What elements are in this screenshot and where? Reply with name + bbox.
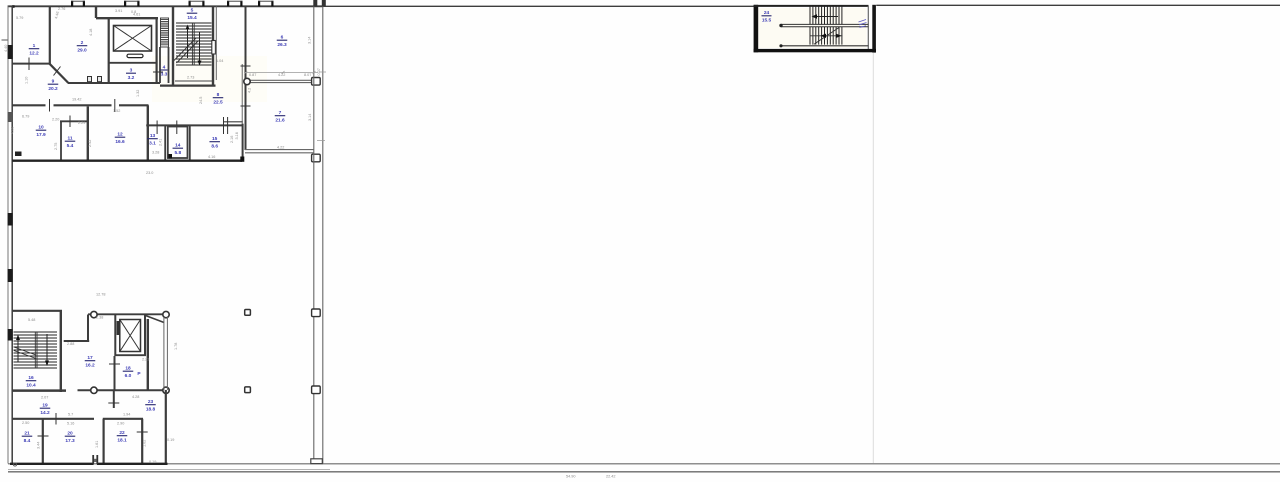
svg-text:1.94: 1.94 <box>123 413 130 417</box>
svg-text:2: 2 <box>81 40 84 46</box>
svg-text:2.42: 2.42 <box>88 140 92 147</box>
svg-text:1.04: 1.04 <box>216 59 223 63</box>
svg-text:2.38: 2.38 <box>96 316 103 320</box>
svg-text:3: 3 <box>130 68 133 74</box>
svg-text:3.44: 3.44 <box>37 442 41 449</box>
svg-text:11: 11 <box>67 136 72 142</box>
svg-text:8.6: 8.6 <box>211 144 218 150</box>
svg-text:3.14: 3.14 <box>308 114 312 121</box>
svg-text:4.22: 4.22 <box>277 146 284 150</box>
svg-text:2.88: 2.88 <box>67 342 74 346</box>
svg-text:14: 14 <box>175 143 181 149</box>
svg-text:13: 13 <box>150 133 156 139</box>
svg-text:16.2: 16.2 <box>85 363 95 369</box>
svg-text:1.61: 1.61 <box>95 441 99 448</box>
svg-text:2.90: 2.90 <box>117 422 124 426</box>
svg-text:2.20: 2.20 <box>52 118 59 122</box>
svg-text:22.5: 22.5 <box>213 100 223 106</box>
svg-text:23: 23 <box>148 399 154 405</box>
svg-text:6.0: 6.0 <box>125 373 132 379</box>
svg-text:4.28: 4.28 <box>132 395 139 399</box>
svg-text:3.91: 3.91 <box>115 9 122 13</box>
svg-text:1.78: 1.78 <box>174 343 178 350</box>
svg-text:12: 12 <box>117 132 123 138</box>
svg-text:2.73: 2.73 <box>187 76 194 80</box>
svg-text:1: 1 <box>33 43 36 49</box>
svg-text:4.22: 4.22 <box>278 73 285 77</box>
svg-text:2.16: 2.16 <box>230 136 234 143</box>
svg-text:15: 15 <box>212 136 218 142</box>
svg-text:8.07: 8.07 <box>304 73 311 77</box>
svg-text:5.16: 5.16 <box>67 422 74 426</box>
svg-text:2.29: 2.29 <box>78 121 85 125</box>
svg-text:26.3: 26.3 <box>277 42 287 48</box>
svg-text:15.4: 15.4 <box>187 15 197 21</box>
svg-text:4.16: 4.16 <box>208 155 215 159</box>
svg-text:5.48: 5.48 <box>28 318 35 322</box>
svg-text:4.40: 4.40 <box>4 45 8 52</box>
svg-text:29.0: 29.0 <box>77 48 87 54</box>
svg-text:3.14: 3.14 <box>308 37 312 44</box>
svg-text:2.07: 2.07 <box>41 396 48 400</box>
svg-text:2.75: 2.75 <box>54 143 58 150</box>
svg-text:19: 19 <box>42 403 48 409</box>
svg-text:4.18: 4.18 <box>89 29 93 36</box>
svg-text:18: 18 <box>125 366 131 372</box>
svg-text:3.1: 3.1 <box>149 141 156 147</box>
svg-text:0.87: 0.87 <box>249 73 256 77</box>
svg-text:6: 6 <box>281 35 284 41</box>
svg-text:20: 20 <box>67 431 73 437</box>
svg-text:3.16: 3.16 <box>235 132 239 139</box>
svg-text:17.3: 17.3 <box>65 438 75 444</box>
svg-text:5.79: 5.79 <box>16 16 23 20</box>
svg-text:20.2: 20.2 <box>48 86 58 92</box>
svg-text:16.6: 16.6 <box>115 139 125 145</box>
svg-text:17: 17 <box>87 355 93 361</box>
svg-text:0.19: 0.19 <box>167 438 174 442</box>
svg-text:21.6: 21.6 <box>275 118 285 124</box>
svg-text:3.28: 3.28 <box>152 151 159 155</box>
svg-text:22.42: 22.42 <box>606 475 616 479</box>
svg-text:9: 9 <box>52 79 55 85</box>
svg-text:1.32: 1.32 <box>136 90 140 97</box>
svg-text:19.42: 19.42 <box>72 98 82 102</box>
svg-text:23.0: 23.0 <box>146 171 153 175</box>
svg-text:3.2: 3.2 <box>128 75 135 81</box>
svg-text:2.76: 2.76 <box>58 7 65 11</box>
svg-text:5: 5 <box>191 8 194 14</box>
svg-text:15.5: 15.5 <box>762 17 772 23</box>
svg-text:3.3: 3.3 <box>161 72 168 78</box>
svg-text:14.2: 14.2 <box>40 410 50 416</box>
svg-text:6.79: 6.79 <box>22 115 29 119</box>
svg-text:1.02: 1.02 <box>143 440 147 447</box>
svg-text:22: 22 <box>119 430 125 436</box>
svg-text:4.61: 4.61 <box>133 13 140 17</box>
svg-text:8.4: 8.4 <box>24 438 31 444</box>
svg-text:21: 21 <box>24 431 30 437</box>
svg-text:2.23: 2.23 <box>142 358 149 362</box>
svg-text:18.8: 18.8 <box>146 407 156 413</box>
svg-text:8: 8 <box>217 92 220 98</box>
svg-text:7: 7 <box>279 110 282 116</box>
svg-text:17.9: 17.9 <box>36 132 46 138</box>
svg-text:10: 10 <box>38 125 44 131</box>
svg-text:5.4: 5.4 <box>67 143 74 149</box>
svg-text:5.8: 5.8 <box>174 150 181 156</box>
svg-text:2.50: 2.50 <box>22 421 29 425</box>
svg-text:1.52: 1.52 <box>113 109 120 113</box>
svg-text:12.2: 12.2 <box>29 51 39 57</box>
svg-text:24.5: 24.5 <box>199 97 203 104</box>
svg-text:0.19: 0.19 <box>149 460 156 464</box>
svg-text:1.10: 1.10 <box>25 77 29 84</box>
svg-text:12.78: 12.78 <box>96 293 106 297</box>
svg-text:2.41: 2.41 <box>159 139 163 146</box>
svg-text:5.7: 5.7 <box>68 413 73 417</box>
svg-text:54.90: 54.90 <box>566 475 576 479</box>
svg-text:10.4: 10.4 <box>26 383 36 389</box>
svg-text:16: 16 <box>28 375 34 381</box>
svg-text:4.08: 4.08 <box>11 127 15 134</box>
svg-text:4.2: 4.2 <box>248 88 252 93</box>
svg-text:18.1: 18.1 <box>117 438 127 444</box>
